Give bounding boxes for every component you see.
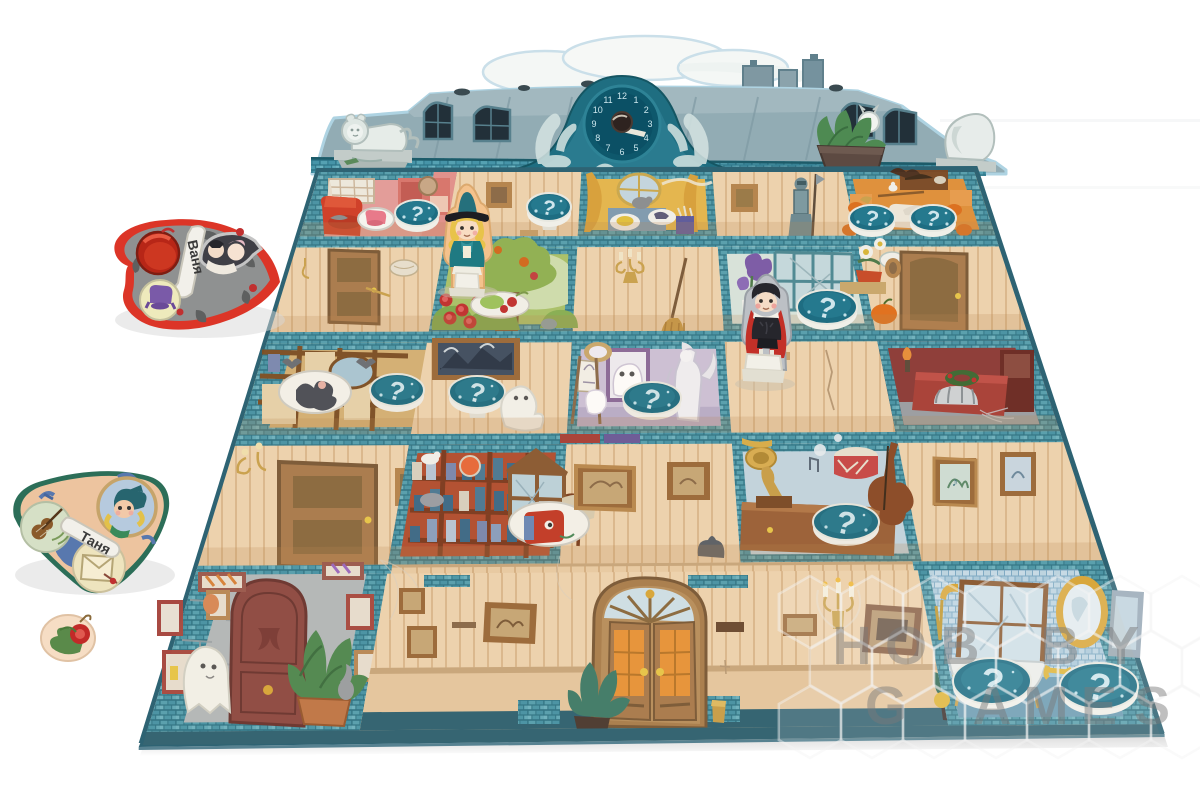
svg-text:10: 10 [593,105,603,115]
svg-text:1: 1 [633,95,638,105]
svg-text:B: B [1041,616,1080,676]
svg-text:8: 8 [595,133,600,143]
svg-text:♪: ♪ [952,474,959,489]
svg-text:S: S [1134,676,1170,736]
svg-text:11: 11 [603,95,612,105]
svg-text:6: 6 [619,147,624,157]
svg-text:2: 2 [644,105,649,115]
svg-text:9: 9 [591,119,596,129]
svg-text:E: E [1081,676,1117,736]
svg-text:12: 12 [617,91,627,101]
svg-text:3: 3 [647,119,652,129]
svg-text:B: B [941,616,980,676]
svg-text:H: H [833,616,872,676]
svg-text:A: A [973,676,1012,736]
svg-text:M: M [1024,676,1069,736]
svg-text:5: 5 [633,143,638,153]
svg-text:G: G [865,676,907,736]
svg-text:O: O [885,616,927,676]
svg-text:7: 7 [605,143,610,153]
svg-text:Y: Y [1103,616,1139,676]
